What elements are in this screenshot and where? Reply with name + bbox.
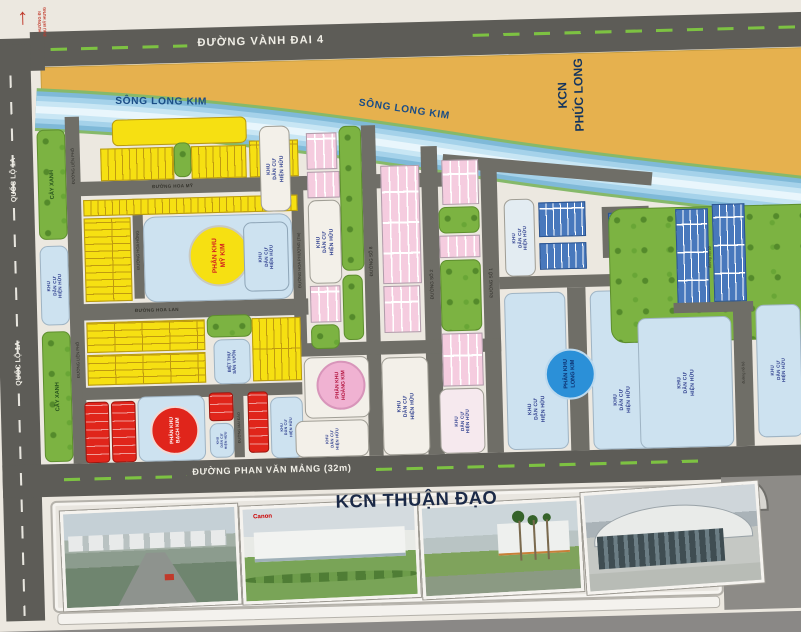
kcn-phuc-long-label: KCN PHÚC LONG [540, 48, 602, 143]
kdc-block-w2: KHUDÂN CƯHIỆN HỮU [308, 200, 343, 284]
photo-industrial-street [60, 504, 242, 612]
road-hoa-my-label: ĐƯỜNG HOA MỸ [152, 183, 193, 189]
yellow-lots-se [252, 317, 303, 381]
blue-lots-b1 [538, 201, 586, 237]
green-strip-c2 [338, 126, 364, 271]
green-strip-hoa-lan [207, 314, 252, 338]
my-kim-line2: MỸ KIM [219, 238, 228, 273]
green-strip-c1 [311, 324, 340, 349]
red-lots-4 [247, 391, 269, 453]
biet-thu-block: BIỆT THỰ SÂN VƯỜN [213, 339, 251, 385]
road-so-8-label: ĐƯỜNG SỐ 8 [361, 227, 381, 295]
kdc-block-east-big: KHUDÂN CƯHIỆN HỮU [637, 316, 734, 449]
canon-logo: Canon [253, 514, 272, 521]
kdc-block-w4: KHUDÂN CƯHIỆN HỮU [295, 419, 369, 458]
red-lots-2 [111, 401, 137, 463]
kdc-block-w10: KHUDÂN CƯHIỆN HỮU [503, 199, 536, 277]
kdc-block-red-zone-1: KHUDÂN CƯHIỆN HỮU [209, 423, 234, 458]
pink-lots-2 [307, 171, 340, 198]
pink-lots-6 [441, 159, 479, 205]
photo1-bus [165, 573, 174, 580]
pink-lots-3 [310, 285, 342, 323]
kdc-block-w1: KHUDÂN CƯHIỆN HỮU [259, 125, 292, 211]
green-median-top [173, 142, 191, 177]
pink-lots-4 [380, 165, 422, 284]
green-strip-c5 [440, 259, 483, 331]
pink-lots-5 [383, 285, 421, 333]
pink-lots-7 [439, 235, 480, 259]
bach-kim-line2: BẠCH KIM [174, 417, 181, 444]
kcn-phuc-long-line2: PHÚC LONG [570, 58, 588, 132]
long-kim-line2: LONG KIM [570, 359, 577, 389]
map-photo: KCN PHÚC LONG SÔNG LONG KIM SÔNG LONG KI… [0, 0, 801, 618]
kdc-block-east-right: KHUDÂN CƯHIỆN HỮU [755, 304, 801, 438]
pink-lots-1 [306, 132, 338, 170]
photo3-building [497, 520, 570, 556]
green-strip-top: CÂY XANH [36, 129, 67, 240]
kdc-block-w6: KHUDÂN CƯHIỆN HỮU [439, 388, 486, 454]
direction-line2: PHÚ MỸ HƯNG [41, 7, 47, 37]
photo-palm-factory [418, 497, 584, 599]
yellow-lots-top-1 [100, 147, 174, 182]
yellow-lots-top-2 [191, 145, 247, 179]
kcn-phuc-long-line1: KCN [554, 59, 572, 133]
biet-thu-line2: SÂN VƯỜN [232, 349, 238, 373]
hoang-kim-line2: HOÀNG KIM [341, 370, 348, 400]
road-lien-pho-label-2: ĐƯỜNG LIÊN PHỐ [70, 329, 86, 391]
kdc-block-left: KHUDÂN CƯHIỆN HỮU [39, 245, 70, 325]
quoc-lo-1a-label-2: QUỐC LỘ 1A [1, 330, 37, 396]
yellow-lots-west [84, 217, 133, 302]
kdc-block-w5: KHUDÂN CƯHIỆN HỮU [381, 356, 430, 455]
photo1-buildings [68, 530, 226, 552]
green-strip-c3 [342, 274, 364, 340]
red-lots-3 [209, 392, 234, 421]
yellow-lots-sw-2 [87, 352, 206, 386]
red-lots-1 [84, 401, 110, 463]
photo-warehouse [580, 481, 764, 595]
road-noi-bo-label-1: đường nội bộ [702, 228, 718, 285]
green-strip-c4 [438, 206, 479, 234]
pink-lots-8 [442, 333, 484, 387]
blue-lots-b2 [539, 242, 587, 270]
photo2-hedge [245, 568, 417, 585]
kdc-block-my-kim: KHUDÂN CƯHIỆN HỮU [243, 221, 290, 292]
direction-sign: HƯỚNG ĐI PHÚ MỸ HƯNG [31, 3, 52, 40]
quoc-lo-1a-label-1: QUỐC LỘ 1A [0, 146, 32, 212]
photo2-building [254, 527, 406, 562]
song-long-kim-label-1: SÔNG LONG KIM [115, 96, 207, 108]
yellow-lots-sw-1 [86, 319, 205, 353]
direction-arrow-icon: ↑ [17, 4, 29, 31]
photo1-road [116, 551, 197, 606]
green-strip-bottom: CÂY XANH [42, 331, 74, 462]
road-noi-bo-label-2: đường nội bộ [734, 344, 754, 402]
photo-canon-factory: Canon [239, 499, 421, 605]
